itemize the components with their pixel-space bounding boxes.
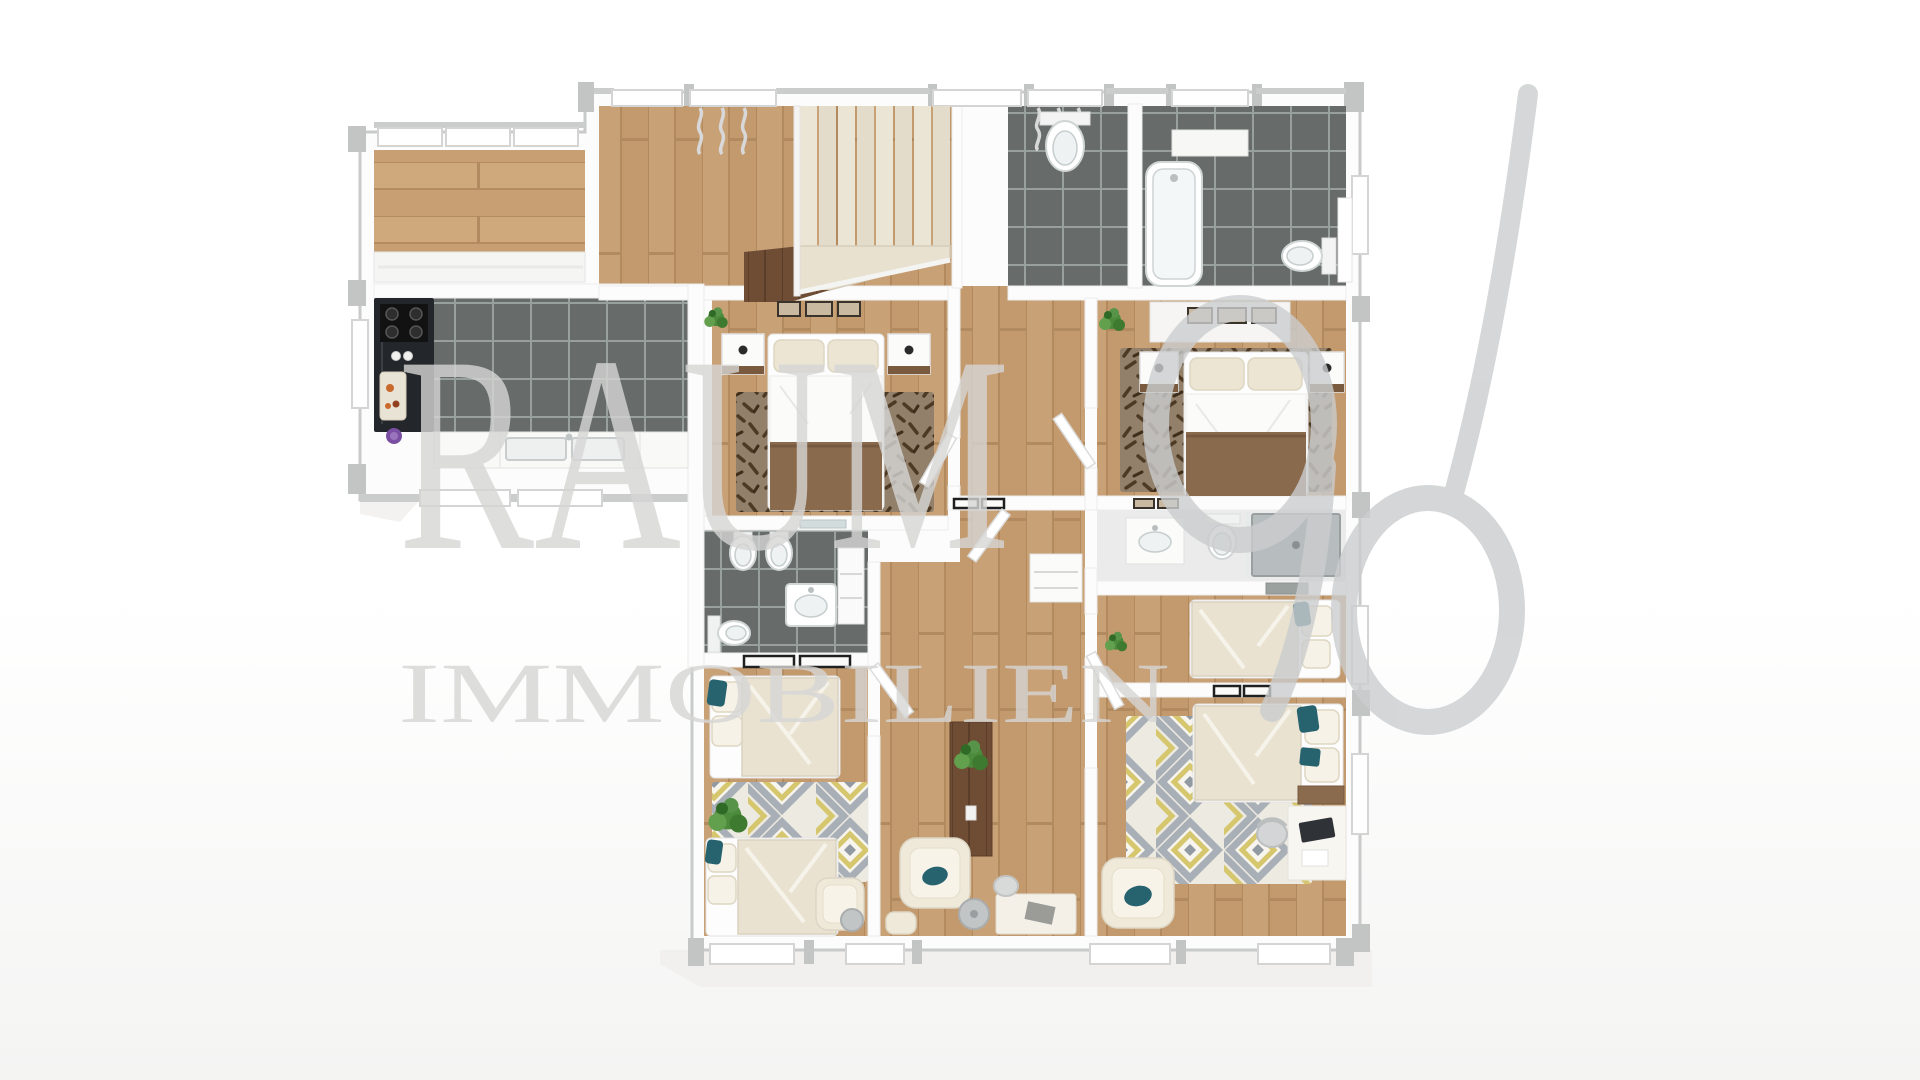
accent-pillow <box>1296 705 1319 734</box>
shower-drain <box>1292 541 1300 549</box>
desk <box>1288 806 1346 880</box>
pillow <box>1190 358 1244 390</box>
watermark-subtitle: IMMOBILIEN <box>398 645 1170 741</box>
armchair <box>1102 858 1174 928</box>
window-niche <box>1172 130 1248 156</box>
vanity <box>1126 518 1184 564</box>
single-bed <box>1190 600 1340 678</box>
desk-chair <box>1257 819 1287 847</box>
balcony-floor <box>374 150 585 252</box>
toilet <box>1282 238 1336 274</box>
floor-plan-render: RAUM 96 IMMOBILIEN <box>0 0 1920 1080</box>
bathtub <box>1146 162 1202 286</box>
side-table <box>841 909 863 931</box>
chair <box>994 876 1018 896</box>
watermark-brand: RAUM <box>398 298 1010 609</box>
stair-railing <box>794 106 800 296</box>
armchair <box>900 838 970 908</box>
faucet <box>1170 174 1178 182</box>
blanket <box>1186 432 1306 496</box>
papers <box>1302 850 1328 866</box>
bedside-bench <box>1298 786 1344 804</box>
faucet <box>1152 525 1158 531</box>
duvet <box>1195 706 1301 800</box>
pillow <box>708 876 736 904</box>
pillow <box>1248 358 1302 390</box>
side-table <box>959 899 989 929</box>
footstool <box>886 912 916 934</box>
accent-pillow <box>704 839 723 865</box>
mirror-frame <box>1134 499 1154 508</box>
accent-throw <box>1299 747 1321 767</box>
decor-item <box>966 806 976 820</box>
double-bed <box>1184 352 1308 496</box>
bathroom-door <box>1338 198 1352 282</box>
hall-cabinet <box>1030 554 1082 602</box>
